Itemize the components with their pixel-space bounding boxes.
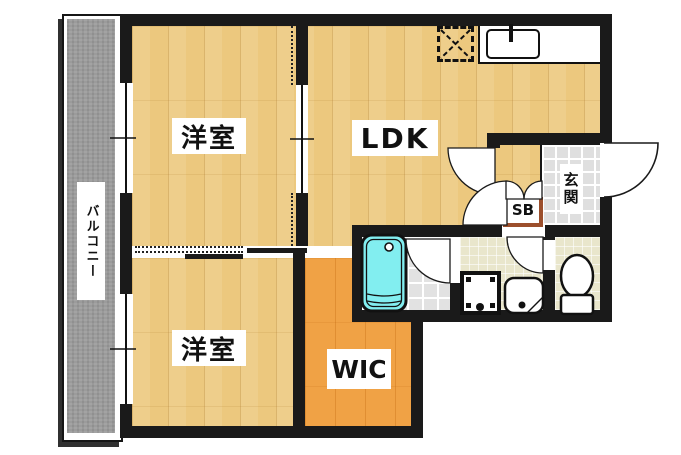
- closet-door-left-swing: [506, 181, 524, 199]
- entrance-label-text: 玄関: [561, 172, 582, 206]
- pan-corner: [490, 277, 495, 282]
- bedroom-top-label-text: 洋室: [181, 118, 237, 155]
- pan-corner: [466, 303, 471, 308]
- toilet-bowl-icon: [561, 255, 593, 297]
- closet-door-right-swing: [524, 181, 542, 199]
- ldk-label-text: LDK: [361, 122, 430, 155]
- wic-label-text: WIC: [331, 355, 386, 384]
- bedroom-top-label: 洋室: [172, 118, 246, 154]
- ldk-label: LDK: [352, 120, 438, 156]
- bedroom-bottom-label-text: 洋室: [181, 330, 237, 367]
- floor-plan: SB: [0, 0, 681, 455]
- pan-drain-icon: [476, 303, 484, 311]
- washbasin-drain-icon: [519, 302, 526, 309]
- pan-corner: [490, 303, 495, 308]
- toilet-tank-icon: [561, 295, 593, 314]
- bedroom-bottom-label: 洋室: [172, 330, 246, 366]
- balcony-label-text: バルコニー: [82, 204, 101, 279]
- washroom-door-swing: [507, 237, 543, 273]
- bathroom-door-swing: [406, 239, 450, 283]
- entrance-door-swing: [604, 143, 658, 197]
- kitchen-faucet-icon: [509, 24, 513, 42]
- wic-label: WIC: [327, 349, 391, 389]
- pan-corner: [466, 277, 471, 282]
- entrance-label: 玄関: [560, 164, 582, 214]
- balcony-label: バルコニー: [77, 182, 105, 300]
- bathtub-icon: [362, 235, 406, 311]
- bathtub-faucet-icon: [385, 243, 393, 251]
